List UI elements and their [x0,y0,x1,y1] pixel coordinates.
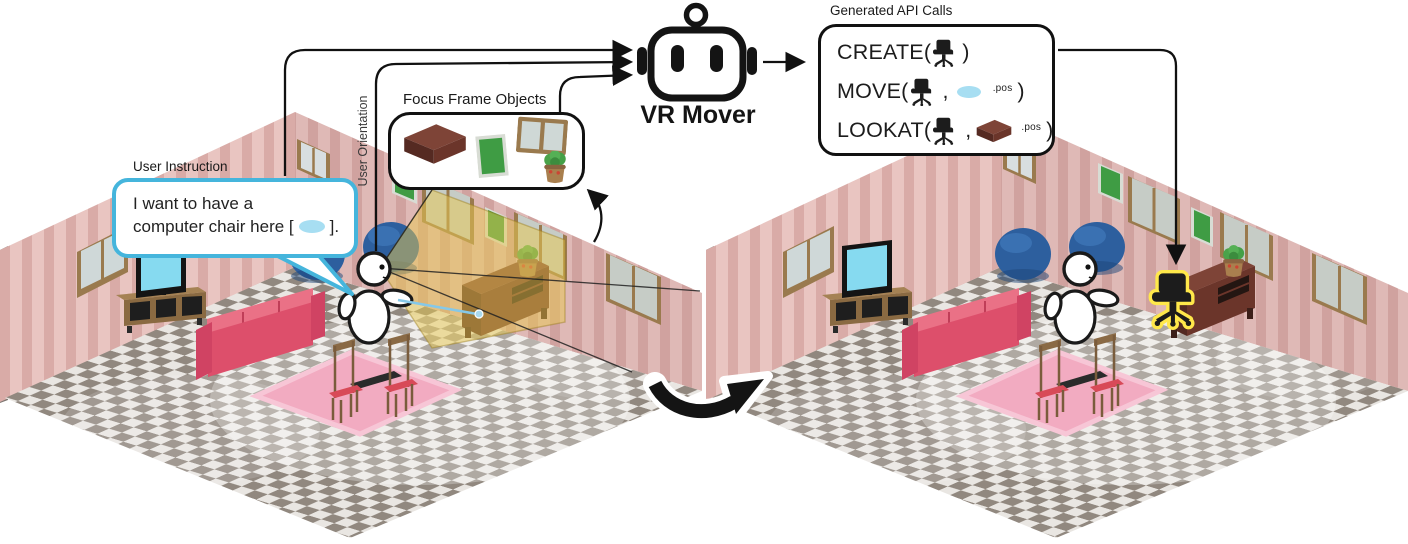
user-orientation-label: User Orientation [356,86,370,196]
window-icon [516,116,568,155]
pos-suffix: .pos [1021,122,1041,133]
api-fn: MOVE [837,79,901,104]
desk-icon [403,123,467,165]
bubble-line1: I want to have a [133,192,253,215]
bubble-line2-suffix: ]. [330,215,339,238]
speech-bubble: I want to have a computer chair here [ ]… [112,178,358,258]
robot-eye-icon [710,45,723,72]
figure-canvas: User Instruction I want to have a comput… [0,0,1408,544]
plant-icon [541,151,569,184]
pos-suffix: .pos [993,83,1013,94]
position-ellipse-icon [957,86,981,98]
bubble-line2-text: computer chair here [ [133,215,294,238]
api-fn: CREATE [837,40,924,65]
api-calls-title: Generated API Calls [830,3,952,18]
api-call-move: MOVE( , .pos ) [837,72,1052,111]
focus-frame-box [388,112,585,190]
focus-frame-label: Focus Frame Objects [403,91,546,108]
focus-connector [560,75,630,114]
office-chair-highlighted [1152,273,1191,326]
robot-head-icon [651,30,743,98]
robot-antenna-icon [687,6,706,25]
robot-eye-icon [671,45,684,72]
api-call-create: CREATE( ) [837,33,1052,72]
desk-icon [976,119,1012,143]
api-calls-panel: CREATE( ) MOVE( , .pos ) LOOKAT( , .pos … [818,24,1055,156]
focus-frame-arrow [589,191,601,242]
office-chair-icon [933,117,958,145]
robot-name-label: VR Mover [636,101,760,130]
api-call-lookat: LOOKAT( , .pos ) [837,111,1052,150]
position-ellipse-icon [299,220,325,233]
green-board-icon [475,134,509,178]
office-chair-icon [933,39,958,67]
scene-drawing [0,0,1408,544]
api-fn: LOOKAT [837,118,924,143]
office-chair-icon [911,78,936,106]
user-instruction-label: User Instruction [133,159,228,174]
vr-mover-robot [637,6,757,99]
